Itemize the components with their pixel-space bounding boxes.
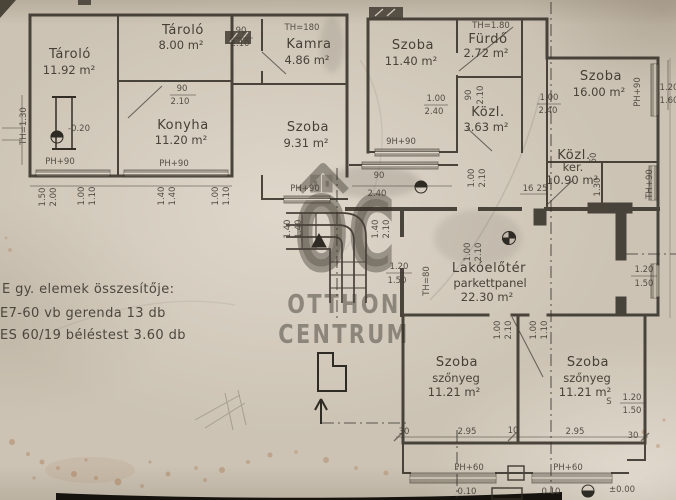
room-floor: parkettpanel: [453, 276, 526, 290]
dim-label: 1.50: [388, 276, 407, 286]
room-area: 11.20 m²: [155, 133, 207, 147]
room-name: Konyha: [157, 118, 209, 133]
dim-label: 1.10: [540, 321, 550, 340]
room-name2: ker.: [563, 160, 584, 174]
dim-label: TH=1.80: [471, 21, 510, 31]
dim-label: 2.40: [368, 189, 387, 199]
room-area: 8.00 m²: [158, 38, 203, 52]
dim-label: 2.10: [474, 243, 484, 262]
room-name: Kamra: [286, 37, 331, 52]
dim-label: 0.10: [542, 487, 561, 497]
dim-label: 1.20: [635, 265, 654, 275]
dim-label: 1.00: [427, 94, 446, 104]
dim-label: 1.00: [467, 169, 477, 188]
dim-label: 2.10: [476, 86, 486, 105]
entrance-arrow: [315, 353, 346, 424]
dim-label: 2.10: [382, 220, 392, 239]
otthon-centrum-watermark: ÖC OTTHON CENTRUM: [278, 167, 409, 350]
dim-label: 2.10: [171, 97, 190, 107]
dim-label: 1.40: [283, 220, 293, 239]
room-area: 11.21 m²: [428, 385, 480, 399]
dim-label: 1.00: [529, 321, 539, 340]
key-plan-symbol: [318, 353, 346, 391]
dim-label: 1.10: [222, 187, 232, 206]
room-name: Tároló: [48, 47, 91, 62]
dim-label: 1.40: [371, 220, 381, 239]
dim-label: 0.10: [458, 487, 477, 497]
dim-label: 30: [399, 427, 410, 437]
dim-label: 2.40: [425, 107, 444, 117]
room-area: 4.86 m²: [284, 53, 329, 67]
dim-label: 2.95: [566, 427, 585, 437]
dim-label: 1.40: [168, 187, 178, 206]
room-area: 22.30 m²: [461, 290, 513, 304]
room-name: Szoba: [436, 355, 478, 370]
room-area: 11.92 m²: [43, 63, 95, 77]
dim-label: 1.20: [623, 393, 642, 403]
dim-label: PH+90: [159, 159, 188, 169]
dim-label: 1.00: [540, 93, 559, 103]
dim-label: 1.30: [593, 178, 603, 197]
dim-label: PH+60: [553, 463, 582, 473]
room-name: Fürdő: [468, 32, 507, 47]
dim-label: 1.60: [660, 96, 676, 106]
watermark-name-line2: CENTRUM: [278, 319, 409, 350]
room-area: 11.21 m²: [559, 385, 611, 399]
dim-label: TH=1.30: [19, 107, 29, 146]
room-area: 3.63 m²: [463, 120, 508, 134]
dim-label: 1.50: [38, 188, 48, 207]
dim-label: 10: [508, 426, 519, 436]
dim-label: 30: [628, 431, 639, 441]
dim-label: 16: [523, 184, 534, 194]
room-name: Lakóelőtér: [452, 261, 526, 276]
dim-label: 2.10: [478, 169, 488, 188]
dim-label: TH+90: [645, 169, 655, 200]
dim-label: 50: [589, 153, 599, 164]
room-name: Szoba: [567, 355, 609, 370]
dim-label: 2.00: [49, 188, 59, 207]
dim-label: PH+90: [633, 77, 643, 106]
room-floor: szőnyeg: [432, 371, 480, 385]
dim-label: 2.10: [231, 39, 250, 49]
dim-label: TH=80: [422, 266, 432, 297]
floor-plan-scan: ÖC OTTHON CENTRUM: [0, 0, 676, 500]
dim-label: 2.40: [539, 106, 558, 116]
handwritten-notes: E gy. elemek összesítője: E7-60 vb geren…: [0, 282, 186, 343]
room-area: 9.31 m²: [283, 136, 328, 150]
watermark-name-line1: OTTHON: [287, 289, 400, 320]
dim-label: 1.00: [463, 243, 473, 262]
dim-label: 1.10: [88, 187, 98, 206]
dim-label: 1.20: [660, 83, 676, 93]
dim-label: 1.40: [294, 220, 304, 239]
dim-label: PH+90: [290, 184, 319, 194]
dim-label: 1.20: [390, 262, 409, 272]
room-name: Szoba: [287, 120, 329, 135]
dim-label: 1.50: [635, 279, 654, 289]
dim-label: 25: [537, 184, 548, 194]
dim-label: 1.00: [493, 321, 503, 340]
dim-label: 9H+90: [386, 137, 416, 147]
room-name: Szoba: [580, 69, 622, 84]
notes-line2: ES 60/19 béléstest 3.60 db: [0, 328, 186, 343]
dim-label: 2.10: [504, 321, 514, 340]
room-area: 2.72 m²: [463, 46, 508, 60]
room-name: Tároló: [161, 23, 204, 38]
room-area: 16.00 m²: [573, 85, 625, 99]
floor-plan-drawing: ÖC OTTHON CENTRUM: [0, 0, 676, 500]
room-floor: szőnyeg: [563, 371, 611, 385]
dim-label: 90: [464, 90, 474, 101]
dim-label: 2.95: [458, 427, 477, 437]
dim-label: 90: [177, 84, 188, 94]
dim-label: 1.00: [77, 187, 87, 206]
dim-label: 1.00: [211, 187, 221, 206]
room-name: Közl.: [471, 105, 504, 120]
notes-title: E gy. elemek összesítője:: [2, 282, 174, 297]
room-area: 10.90 m²: [546, 173, 598, 187]
dim-label: -0.20: [68, 124, 90, 134]
dim-label: ±0.00: [609, 485, 635, 495]
dim-label: PH+60: [454, 463, 483, 473]
dim-label: 1.40: [157, 187, 167, 206]
dim-label: S: [606, 397, 611, 407]
dim-label: 1.50: [623, 406, 642, 416]
room-area: 11.40 m²: [385, 54, 437, 68]
dim-label: TH=180: [284, 23, 320, 33]
notes-line1: E7-60 vb gerenda 13 db: [0, 306, 166, 321]
dim-label: 90: [236, 26, 247, 36]
dim-label: PH+90: [45, 157, 74, 167]
chimney-symbols: [52, 7, 403, 149]
room-name: Szoba: [392, 38, 434, 53]
dim-label: 90: [374, 171, 385, 181]
